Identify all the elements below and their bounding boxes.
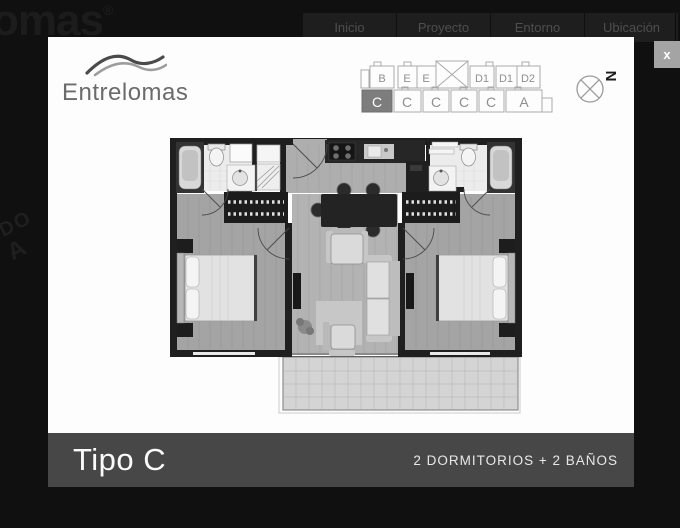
unit-label: C bbox=[402, 94, 412, 110]
unit-label: C bbox=[486, 94, 496, 110]
unit-type-title: Tipo C bbox=[48, 442, 166, 478]
unit-label: D1 bbox=[475, 73, 489, 85]
floor-plan-image bbox=[168, 135, 524, 420]
nav-divider bbox=[675, 13, 676, 42]
unit-type-subtitle: 2 DORMITORIOS + 2 BAÑOS bbox=[413, 453, 634, 468]
brand-name: Entrelomas bbox=[62, 79, 188, 107]
unit-label: C bbox=[431, 94, 441, 110]
registered-mark: ® bbox=[103, 2, 112, 18]
brand-logo: Entrelomas bbox=[62, 51, 188, 107]
selected-unit-label: C bbox=[372, 94, 382, 110]
unit-label: B bbox=[378, 73, 385, 85]
unit-label: D1 bbox=[499, 73, 513, 85]
compass-north-icon: N bbox=[576, 65, 636, 122]
page: { "background": { "logo_text": "omas", "… bbox=[0, 0, 680, 528]
unit-label: A bbox=[519, 94, 529, 110]
building-unit-map: B E E D1 D1 D2 C C C C C A bbox=[360, 57, 556, 122]
unit-label: C bbox=[459, 94, 469, 110]
wave-logo-icon bbox=[83, 51, 167, 77]
unit-label: E bbox=[422, 73, 429, 85]
balcony bbox=[279, 357, 520, 413]
floor-plan-modal: Entrelomas bbox=[48, 37, 634, 487]
unit-label: E bbox=[403, 73, 410, 85]
close-button[interactable]: x bbox=[654, 41, 680, 68]
north-label: N bbox=[602, 71, 619, 82]
laundry-closet bbox=[257, 145, 280, 190]
modal-footer-bar: Tipo C 2 DORMITORIOS + 2 BAÑOS bbox=[48, 433, 634, 487]
unit-label: D2 bbox=[521, 73, 535, 85]
